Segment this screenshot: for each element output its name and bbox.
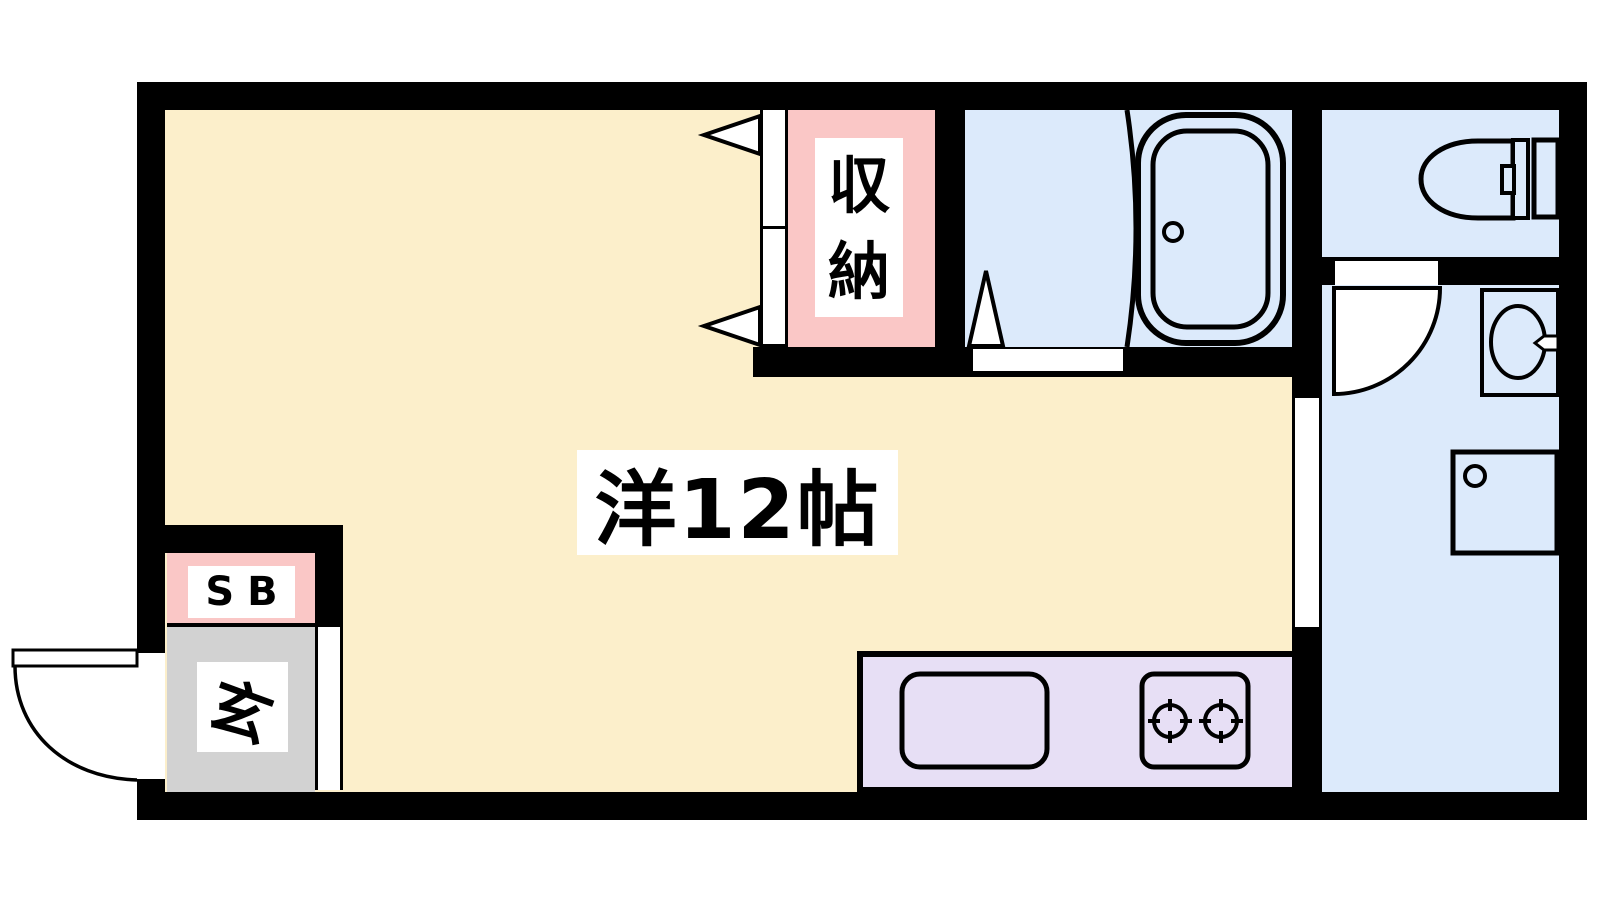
wall-right [1559, 82, 1587, 820]
wall-bottom [137, 792, 1587, 820]
washroom-opening [1292, 398, 1322, 627]
closet-label-text: 収納 [815, 143, 903, 315]
shoe-box-label: SB [188, 566, 295, 618]
entrance-step-opening [315, 627, 343, 790]
wall-entrance-top [137, 525, 343, 553]
washroom-floor [1322, 285, 1559, 792]
entrance-label-text: 玄 [198, 654, 287, 760]
toilet-doorway [1335, 261, 1438, 285]
wall-entrance-stub [315, 553, 343, 627]
wall-closet-right [935, 110, 965, 377]
closet-label: 収納 [815, 138, 903, 317]
closet-door-panel-divider [763, 226, 785, 229]
main-room-label: 洋12帖 [577, 450, 898, 555]
floor-plan: 洋12帖 収納 SB 玄 [0, 0, 1600, 900]
bathroom-floor [965, 110, 1292, 347]
entrance-label: 玄 [197, 662, 288, 752]
shoe-box-label-text: SB [192, 569, 290, 615]
kitchen-counter [857, 651, 1292, 792]
wall-top [137, 82, 1587, 110]
closet-door-panel [760, 110, 788, 347]
main-room-label-text: 洋12帖 [594, 443, 880, 562]
bath-doorway [973, 349, 1123, 371]
entry-door-swing-icon [13, 650, 137, 780]
entry-doorway [137, 653, 165, 779]
toilet-room-floor [1322, 110, 1559, 257]
